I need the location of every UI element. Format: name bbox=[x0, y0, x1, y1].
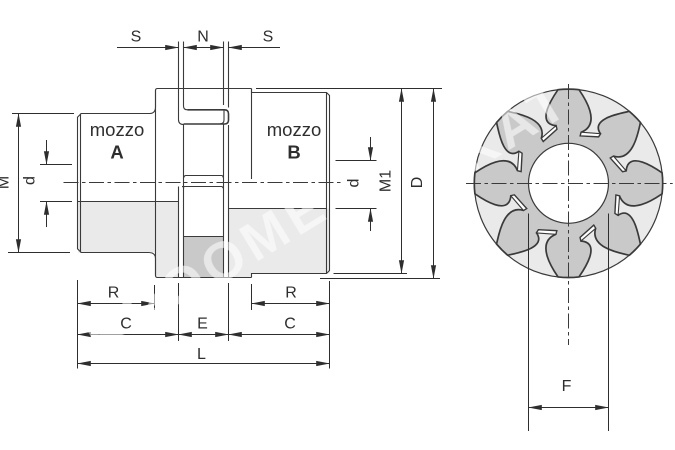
svg-text:R: R bbox=[285, 285, 297, 302]
svg-text:S: S bbox=[131, 29, 142, 46]
svg-text:d: d bbox=[21, 176, 38, 185]
svg-text:A: A bbox=[110, 142, 123, 163]
svg-text:N: N bbox=[197, 29, 209, 46]
svg-text:M1: M1 bbox=[378, 170, 395, 192]
svg-text:B: B bbox=[287, 142, 300, 163]
svg-text:mozzo: mozzo bbox=[90, 119, 145, 140]
svg-text:d: d bbox=[346, 179, 363, 188]
svg-text:L: L bbox=[197, 346, 206, 363]
svg-text:mozzo: mozzo bbox=[267, 119, 322, 140]
svg-text:C: C bbox=[284, 316, 296, 333]
svg-text:S: S bbox=[263, 29, 274, 46]
svg-text:M: M bbox=[0, 176, 13, 189]
svg-text:F: F bbox=[562, 378, 572, 395]
svg-text:D: D bbox=[409, 177, 426, 189]
svg-text:E: E bbox=[197, 316, 208, 333]
